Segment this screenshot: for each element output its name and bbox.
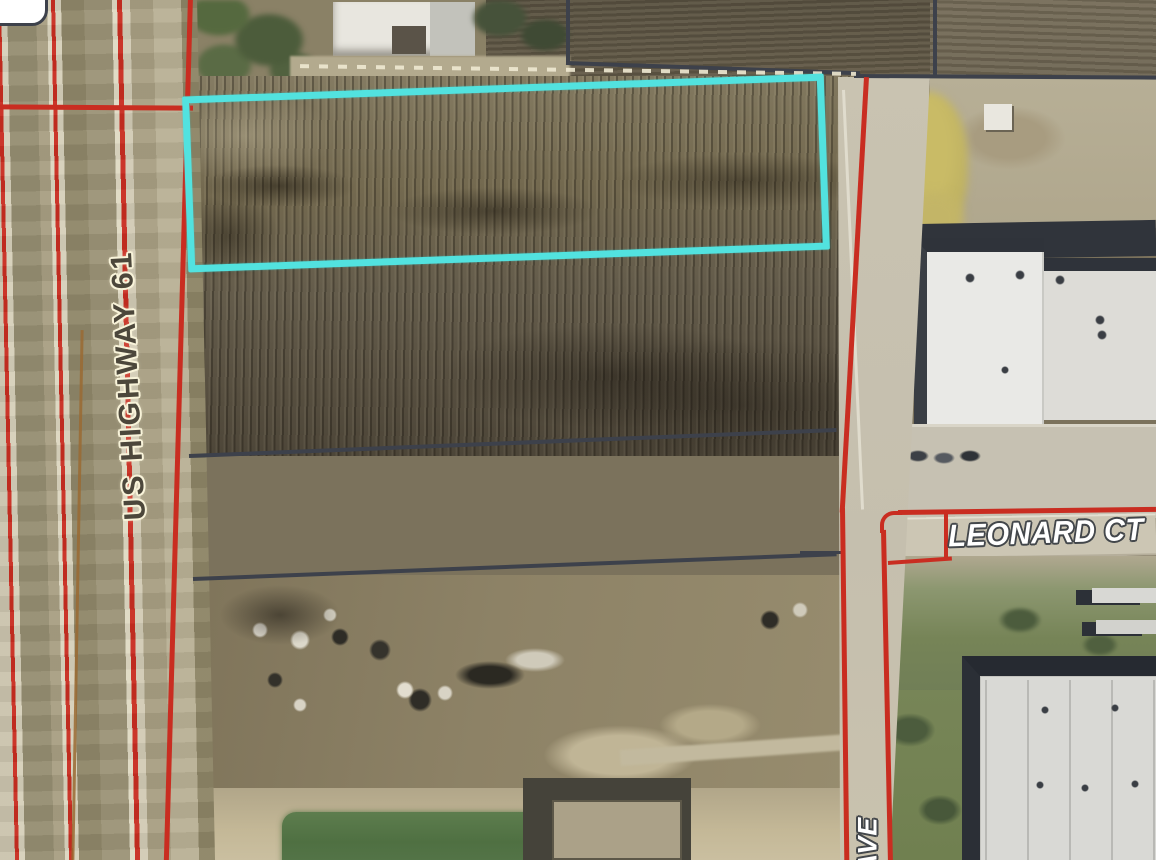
building-bottom-roof-seams — [985, 680, 1156, 860]
boundary-line-avenue-west — [800, 551, 842, 554]
selected-parcel-highlight[interactable] — [182, 74, 830, 273]
street-label-avenue: AVE — [853, 817, 884, 860]
map-viewport[interactable]: US HIGHWAY 61 LEONARD CT AVE — [0, 0, 1156, 860]
small-white-shed — [984, 104, 1012, 130]
boundary-line-top-vertical — [566, 0, 570, 64]
boundary-line-topright-vertical — [933, 0, 937, 76]
parked-cars — [900, 446, 990, 476]
farmstead-trees-east — [470, 0, 580, 60]
street-label-leonard-ct: LEONARD CT — [948, 512, 1145, 555]
equipment-yard — [190, 575, 850, 800]
dock-trailer-1 — [1092, 588, 1156, 603]
farm-building-opening — [392, 26, 426, 54]
dock-trailer-2 — [1096, 620, 1156, 634]
corner-panel-artifact — [0, 0, 48, 26]
bottom-structure-roof — [552, 800, 682, 860]
field-top-right — [930, 0, 1156, 80]
building-roof-vents — [930, 260, 1150, 380]
